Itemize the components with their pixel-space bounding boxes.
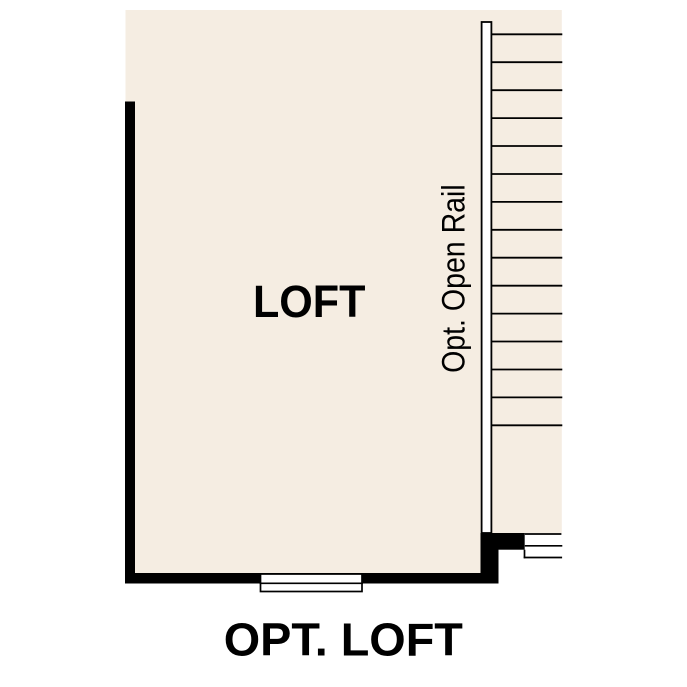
svg-text:OPT. LOFT: OPT. LOFT: [224, 613, 464, 665]
svg-text:LOFT: LOFT: [253, 276, 366, 327]
svg-text:Opt. Open Rail: Opt. Open Rail: [436, 184, 472, 373]
